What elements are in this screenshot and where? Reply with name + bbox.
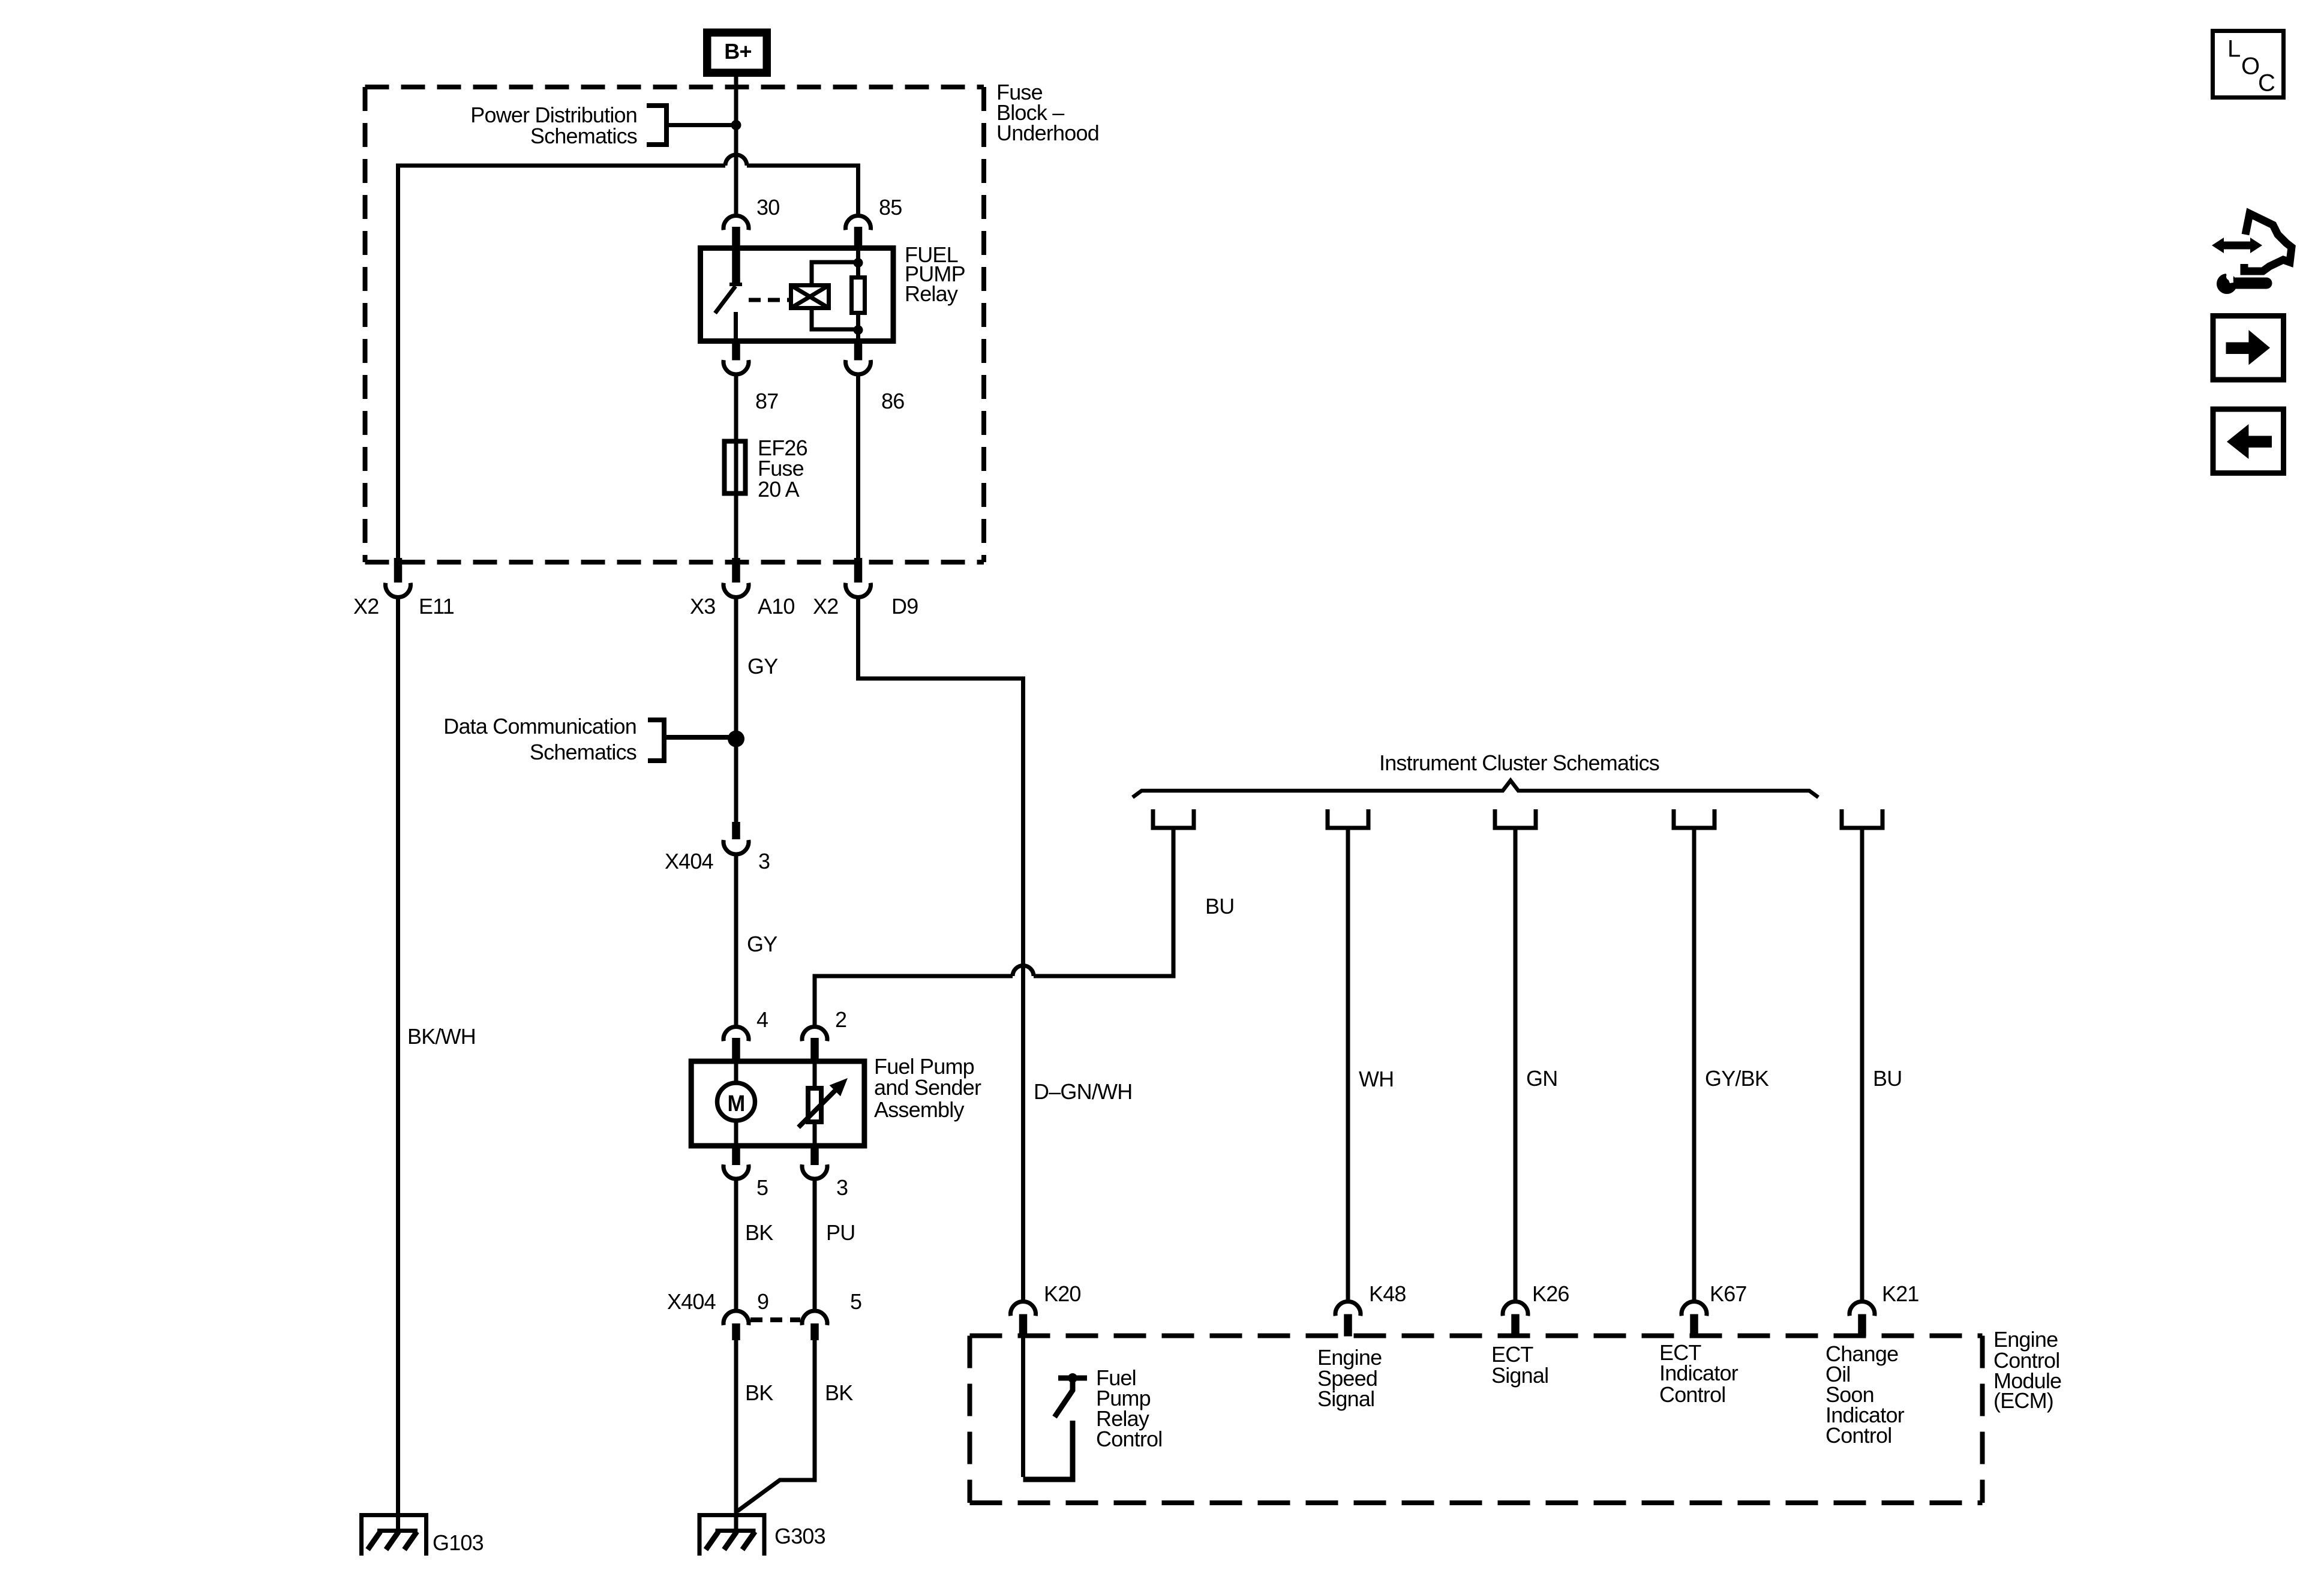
svg-text:L: L	[2227, 36, 2240, 62]
svg-text:X3: X3	[690, 594, 715, 619]
svg-text:Underhood: Underhood	[996, 121, 1099, 145]
svg-text:5: 5	[756, 1175, 768, 1200]
svg-text:and Sender: and Sender	[874, 1075, 981, 1100]
svg-text:Schematics: Schematics	[530, 740, 636, 764]
svg-text:O: O	[2241, 53, 2259, 80]
svg-text:Control: Control	[1659, 1382, 1725, 1407]
svg-text:E11: E11	[419, 594, 454, 619]
svg-text:X2: X2	[813, 594, 838, 619]
svg-text:PU: PU	[826, 1220, 855, 1245]
svg-text:G103: G103	[433, 1530, 484, 1555]
svg-text:5: 5	[850, 1289, 861, 1314]
svg-text:(ECM): (ECM)	[1993, 1388, 2053, 1413]
svg-text:Assembly: Assembly	[874, 1097, 964, 1122]
svg-text:K21: K21	[1882, 1281, 1919, 1306]
svg-text:X404: X404	[667, 1289, 716, 1314]
svg-text:3: 3	[758, 849, 770, 873]
svg-text:GY: GY	[747, 654, 778, 679]
svg-text:X404: X404	[665, 849, 713, 873]
svg-text:Indicator: Indicator	[1659, 1361, 1739, 1385]
svg-text:Schematics: Schematics	[530, 124, 637, 148]
svg-text:Control: Control	[1825, 1423, 1891, 1448]
svg-text:K20: K20	[1044, 1281, 1081, 1306]
svg-text:87: 87	[755, 389, 778, 413]
svg-text:GN: GN	[1526, 1066, 1557, 1091]
svg-text:D–GN/WH: D–GN/WH	[1034, 1079, 1132, 1104]
svg-text:Relay: Relay	[905, 281, 958, 306]
svg-text:D9: D9	[891, 594, 918, 619]
svg-text:4: 4	[756, 1007, 768, 1032]
svg-text:BK: BK	[825, 1380, 853, 1405]
svg-text:WH: WH	[1359, 1067, 1394, 1091]
svg-text:BK: BK	[745, 1380, 773, 1405]
svg-text:20 A: 20 A	[758, 477, 800, 502]
svg-text:Instrument Cluster Schematics: Instrument Cluster Schematics	[1379, 751, 1659, 775]
svg-text:Signal: Signal	[1491, 1363, 1548, 1388]
svg-text:Signal: Signal	[1317, 1386, 1374, 1411]
svg-text:BK/WH: BK/WH	[407, 1024, 476, 1049]
svg-text:G303: G303	[774, 1524, 825, 1548]
svg-text:K26: K26	[1532, 1281, 1569, 1306]
svg-text:85: 85	[879, 195, 902, 220]
svg-text:9: 9	[757, 1289, 768, 1314]
svg-text:Control: Control	[1096, 1427, 1162, 1451]
svg-text:2: 2	[835, 1007, 846, 1032]
svg-text:BU: BU	[1205, 894, 1234, 918]
svg-text:GY: GY	[747, 932, 777, 956]
svg-text:GY/BK: GY/BK	[1705, 1066, 1769, 1091]
svg-text:A10: A10	[758, 594, 795, 619]
svg-text:X2: X2	[353, 594, 379, 619]
svg-text:C: C	[2258, 70, 2275, 97]
svg-text:K67: K67	[1710, 1281, 1747, 1306]
svg-text:3: 3	[836, 1175, 848, 1200]
svg-text:Data Communication: Data Communication	[443, 714, 636, 739]
svg-text:86: 86	[881, 389, 904, 413]
svg-text:BK: BK	[745, 1220, 773, 1245]
svg-text:30: 30	[756, 195, 779, 220]
svg-text:K48: K48	[1369, 1281, 1406, 1306]
svg-text:B+: B+	[724, 39, 751, 64]
svg-text:BU: BU	[1873, 1066, 1902, 1091]
svg-text:M: M	[728, 1091, 745, 1116]
